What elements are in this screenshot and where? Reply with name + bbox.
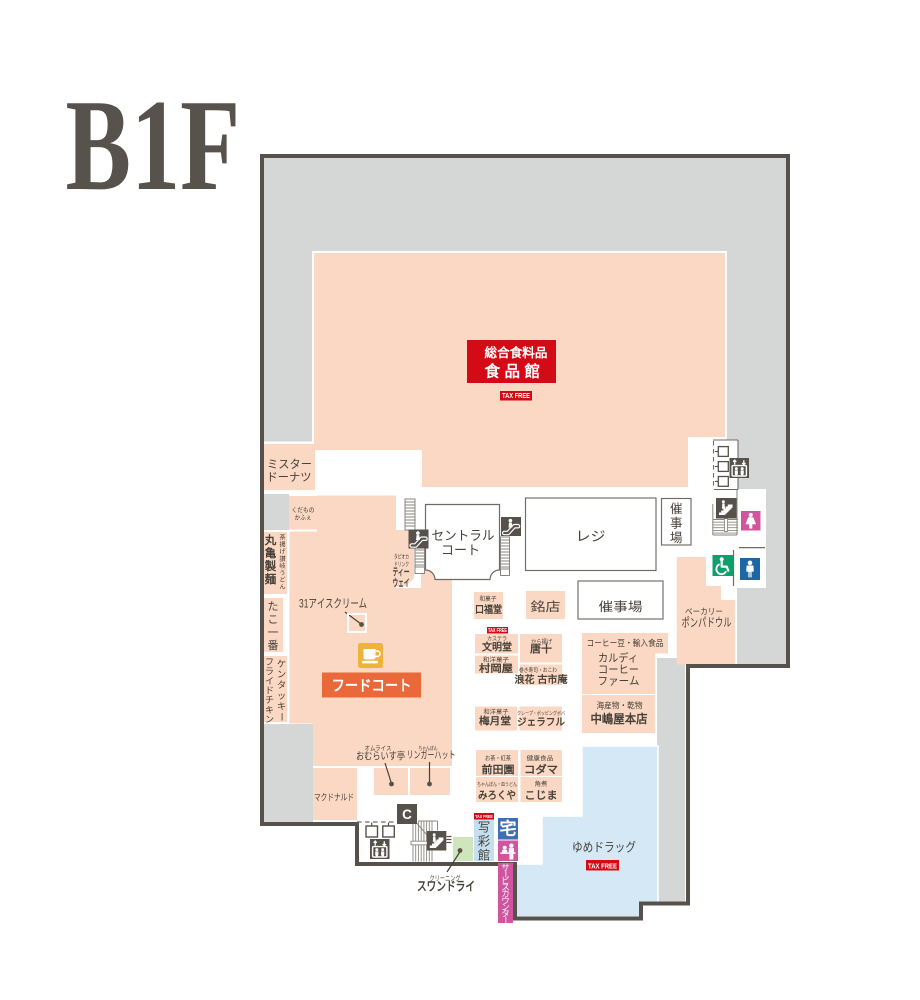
svg-text:ラ: ラ xyxy=(265,667,274,677)
svg-text:製: 製 xyxy=(264,559,277,573)
svg-text:銘店: 銘店 xyxy=(531,599,561,614)
svg-text:ン: ン xyxy=(277,670,286,680)
svg-text:コート: コート xyxy=(441,543,480,558)
svg-text:ド: ド xyxy=(265,686,274,696)
svg-text:イ: イ xyxy=(265,676,274,686)
svg-text:岐: 岐 xyxy=(279,562,285,570)
svg-text:館: 館 xyxy=(478,848,491,863)
svg-text:かふぇ: かふぇ xyxy=(295,514,312,522)
svg-text:キ: キ xyxy=(277,701,286,711)
svg-text:口福堂: 口福堂 xyxy=(475,603,502,616)
svg-text:亀: 亀 xyxy=(265,546,277,560)
svg-text:巻き寿司・おこわ: 巻き寿司・おこわ xyxy=(519,666,557,674)
svg-text:ー: ー xyxy=(276,712,286,721)
svg-text:彩: 彩 xyxy=(478,835,491,849)
svg-text:催: 催 xyxy=(670,502,683,516)
svg-text:スワンドライ: スワンドライ xyxy=(417,880,475,894)
svg-text:海産物・乾物: 海産物・乾物 xyxy=(597,701,643,711)
svg-text:唐十: 唐十 xyxy=(530,643,552,656)
svg-text:ポンパドウル: ポンパドウル xyxy=(682,616,732,630)
svg-text:場: 場 xyxy=(670,531,683,545)
svg-text:TAX FREE: TAX FREE xyxy=(475,814,493,820)
svg-text:フ: フ xyxy=(265,657,274,667)
svg-text:コダマ: コダマ xyxy=(524,763,559,776)
svg-text:ファーム: ファーム xyxy=(598,675,640,688)
svg-text:総合食料品: 総合食料品 xyxy=(485,345,548,360)
svg-text:和洋菓子: 和洋菓子 xyxy=(483,656,509,664)
svg-text:げ: げ xyxy=(279,548,286,556)
svg-text:和洋菓子: 和洋菓子 xyxy=(484,708,509,716)
svg-text:リンガーハット: リンガーハット xyxy=(407,750,456,762)
svg-text:ティー: ティー xyxy=(393,567,410,579)
svg-text:和菓子: 和菓子 xyxy=(480,595,497,603)
svg-text:茶: 茶 xyxy=(279,534,285,542)
svg-text:麺: 麺 xyxy=(264,572,277,586)
svg-text:ゆめドラッグ: ゆめドラッグ xyxy=(572,841,636,855)
svg-text:ウェイ: ウェイ xyxy=(393,578,410,590)
svg-text:ミスター: ミスター xyxy=(267,458,312,471)
svg-text:TAX FREE: TAX FREE xyxy=(502,393,530,400)
svg-text:ドーナツ: ドーナツ xyxy=(267,471,312,484)
svg-text:こじま: こじま xyxy=(525,790,558,802)
svg-text:ー: ー xyxy=(501,916,511,925)
svg-text:事: 事 xyxy=(670,517,683,531)
svg-text:う: う xyxy=(279,570,285,577)
svg-text:讃: 讃 xyxy=(279,555,286,563)
svg-text:31アイスクリーム: 31アイスクリーム xyxy=(299,597,367,611)
svg-text:ど: ど xyxy=(279,576,285,584)
svg-text:C: C xyxy=(402,807,412,822)
svg-text:梅月堂: 梅月堂 xyxy=(479,715,511,728)
svg-text:コーヒー豆・輸入食品: コーヒー豆・輸入食品 xyxy=(587,638,664,648)
svg-text:B1F: B1F xyxy=(66,74,241,219)
svg-text:カルディ: カルディ xyxy=(598,651,638,665)
svg-text:TAX FREE: TAX FREE xyxy=(488,628,507,634)
svg-text:タ: タ xyxy=(277,680,286,690)
svg-text:クレープ・ポッピングボバ: クレープ・ポッピングボバ xyxy=(517,710,565,717)
svg-text:健康食品: 健康食品 xyxy=(527,755,554,763)
svg-text:催事場: 催事場 xyxy=(599,600,643,614)
svg-text:ケ: ケ xyxy=(277,659,286,669)
svg-text:村岡屋: 村岡屋 xyxy=(479,662,513,675)
svg-text:食品館: 食品館 xyxy=(483,362,544,381)
svg-text:ちゃんぽん・皿うどん: ちゃんぽん・皿うどん xyxy=(477,780,517,788)
svg-text:フードコート: フードコート xyxy=(332,678,412,695)
svg-text:前田園: 前田園 xyxy=(482,763,515,776)
svg-text:揚: 揚 xyxy=(279,541,285,549)
svg-text:おむらいす亭: おむらいす亭 xyxy=(356,750,405,763)
svg-text:ッ: ッ xyxy=(277,691,286,701)
svg-text:角煮: 角煮 xyxy=(535,780,548,788)
svg-text:丸: 丸 xyxy=(264,533,277,547)
svg-text:マクドナルド: マクドナルド xyxy=(314,793,354,803)
svg-text:TAX FREE: TAX FREE xyxy=(588,861,617,870)
svg-text:くだもの: くだもの xyxy=(292,506,315,514)
svg-text:タピオカ: タピオカ xyxy=(394,553,409,561)
svg-text:番: 番 xyxy=(268,639,279,652)
svg-text:キ: キ xyxy=(265,705,274,715)
svg-text:コーヒー: コーヒー xyxy=(598,663,639,676)
svg-text:ん: ん xyxy=(279,584,285,591)
svg-text:ン: ン xyxy=(265,714,274,724)
svg-text:写: 写 xyxy=(478,821,491,835)
svg-text:カステラ: カステラ xyxy=(487,636,507,643)
svg-text:レジ: レジ xyxy=(576,529,606,544)
svg-text:た: た xyxy=(268,600,279,613)
svg-text:みろくや: みろくや xyxy=(478,790,516,802)
svg-text:こ: こ xyxy=(268,614,279,626)
svg-text:セントラル: セントラル xyxy=(432,528,495,543)
svg-text:チ: チ xyxy=(265,695,274,705)
svg-text:文明堂: 文明堂 xyxy=(482,641,512,654)
svg-text:一: 一 xyxy=(268,627,279,639)
svg-text:お茶・紅茶: お茶・紅茶 xyxy=(485,755,511,763)
svg-text:宅: 宅 xyxy=(500,819,517,839)
svg-text:浪花 古市庵: 浪花 古市庵 xyxy=(515,673,569,686)
svg-text:ジェラフル: ジェラフル xyxy=(517,717,565,729)
svg-text:中嶋屋本店: 中嶋屋本店 xyxy=(591,711,648,726)
